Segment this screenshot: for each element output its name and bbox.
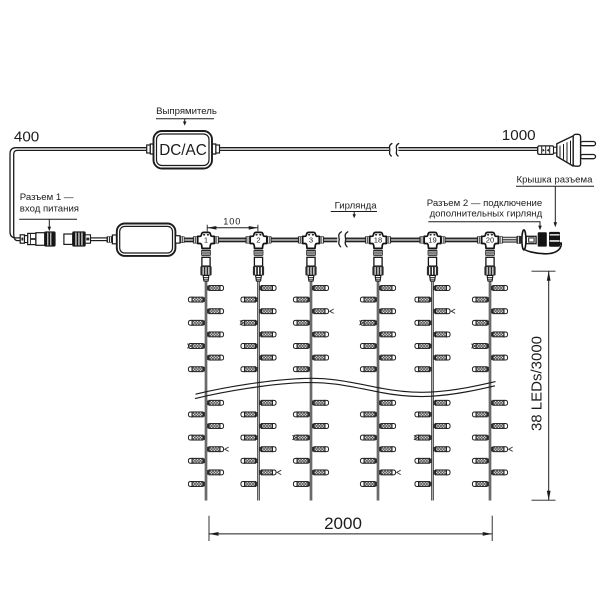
svg-text:100: 100 — [223, 217, 241, 227]
svg-text:20: 20 — [486, 236, 494, 245]
svg-text:Выпрямитель: Выпрямитель — [156, 106, 217, 117]
svg-text:1: 1 — [204, 236, 208, 245]
svg-text:38 LEDs/3000: 38 LEDs/3000 — [528, 336, 545, 431]
svg-text:вход питания: вход питания — [20, 204, 79, 215]
svg-text:DC/AC: DC/AC — [159, 142, 207, 159]
svg-text:2: 2 — [256, 236, 260, 245]
svg-text:Разъем 1 —: Разъем 1 — — [20, 192, 74, 203]
svg-text:400: 400 — [14, 129, 39, 146]
svg-text:дополнительных гирлянд: дополнительных гирлянд — [430, 209, 543, 220]
svg-text:1000: 1000 — [502, 127, 536, 144]
svg-text:2000: 2000 — [324, 514, 362, 533]
svg-text:Крышка разъема: Крышка разъема — [517, 175, 594, 186]
svg-text:3: 3 — [309, 236, 313, 245]
svg-text:Гирлянда: Гирлянда — [335, 201, 378, 212]
svg-text:Разъем 2 — подключение: Разъем 2 — подключение — [427, 198, 542, 209]
svg-text:18: 18 — [374, 236, 382, 245]
svg-text:19: 19 — [428, 236, 436, 245]
